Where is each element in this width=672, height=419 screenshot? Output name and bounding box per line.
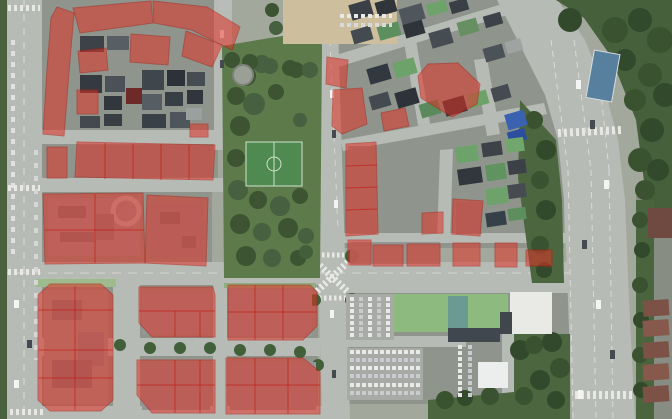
highlighted-building[interactable]: [407, 244, 440, 266]
green-area: [647, 159, 669, 181]
highlighted-block[interactable]: [139, 287, 215, 337]
building: [104, 114, 122, 126]
highlighted-building[interactable]: [190, 124, 208, 137]
green-area: [640, 118, 664, 142]
highlighted-building[interactable]: [47, 147, 67, 178]
building: [105, 76, 125, 92]
green-area: [227, 87, 245, 105]
green-area: [624, 89, 646, 111]
green-area: [253, 223, 271, 241]
green-area: [647, 27, 672, 53]
highlighted-building[interactable]: [346, 142, 378, 236]
car: [590, 120, 595, 129]
green-area: [249, 191, 267, 209]
highlighted-building[interactable]: [452, 199, 483, 236]
building: [165, 92, 183, 106]
green-area: [265, 3, 279, 17]
green-area: [632, 277, 648, 293]
apartment-building: [642, 363, 669, 381]
aerial-map-canvas[interactable]: [0, 0, 672, 419]
dark-red-roof-building: [126, 88, 142, 104]
green-area: [293, 113, 307, 127]
road: [344, 283, 568, 293]
green-area: [282, 60, 298, 76]
green-area: [628, 8, 652, 32]
green-area: [635, 180, 655, 200]
green-area: [243, 93, 265, 115]
green-area: [302, 62, 318, 78]
green-area: [481, 387, 499, 405]
green-area: [264, 344, 276, 356]
building: [507, 159, 527, 175]
highlighted-block[interactable]: [137, 360, 215, 413]
green-area: [263, 249, 281, 267]
car: [14, 380, 19, 388]
highlighted-building[interactable]: [526, 250, 552, 266]
building: [186, 108, 202, 120]
building: [187, 72, 205, 86]
car: [596, 300, 601, 309]
green-area: [230, 116, 250, 136]
green-area: [632, 212, 648, 228]
building: [478, 362, 508, 388]
green-area: [144, 342, 156, 354]
building: [500, 312, 512, 334]
green-area: [536, 140, 556, 160]
highlighted-building[interactable]: [130, 34, 170, 65]
car: [220, 60, 224, 68]
car: [576, 80, 581, 89]
green-area: [292, 188, 308, 204]
building: [481, 141, 503, 158]
green-area: [525, 336, 543, 354]
car: [332, 130, 336, 138]
car: [604, 180, 609, 189]
building: [167, 70, 185, 86]
building: [142, 70, 164, 90]
brick-building: [648, 208, 672, 238]
green-area: [436, 391, 454, 409]
green-area: [536, 200, 556, 220]
green-area: [204, 342, 216, 354]
green-area: [602, 17, 628, 43]
green-area: [114, 339, 126, 351]
green-area: [530, 370, 550, 390]
building: [142, 114, 166, 128]
building: [107, 36, 129, 50]
apartment-building: [642, 299, 669, 317]
highlighted-building[interactable]: [373, 245, 403, 266]
highlighted-block[interactable]: [226, 358, 320, 414]
green-area: [299, 245, 313, 259]
green-area: [542, 332, 562, 352]
green-area: [269, 21, 283, 35]
green-area: [515, 387, 533, 405]
highlighted-building[interactable]: [77, 90, 98, 114]
building: [455, 145, 479, 164]
highlighted-building[interactable]: [326, 57, 348, 88]
building: [448, 296, 468, 330]
apartment-building: [642, 385, 669, 403]
apartment-building: [642, 341, 669, 359]
park-pavilion: [233, 65, 253, 85]
apartment-building: [642, 319, 669, 337]
building: [507, 183, 527, 199]
screenshot-root: [0, 0, 672, 419]
green-area: [531, 171, 549, 189]
building: [187, 90, 203, 104]
green-area: [457, 390, 473, 406]
green-area: [278, 218, 298, 238]
green-area: [298, 228, 314, 244]
building: [80, 116, 100, 128]
green-area: [174, 342, 186, 354]
highlighted-building[interactable]: [78, 48, 108, 73]
highlighted-building[interactable]: [495, 243, 517, 267]
green-area: [228, 180, 248, 200]
highlighted-building[interactable]: [422, 212, 443, 234]
building: [142, 94, 162, 110]
green-area: [638, 63, 662, 87]
green-area: [525, 111, 543, 129]
car: [578, 390, 583, 399]
green-area: [270, 196, 290, 216]
highlighted-building[interactable]: [453, 243, 480, 266]
green-area: [230, 214, 250, 234]
green-area: [227, 149, 245, 167]
building: [104, 96, 122, 110]
white-roof-building: [510, 292, 552, 334]
green-area: [634, 242, 650, 258]
green-area: [262, 58, 278, 74]
car: [610, 350, 615, 359]
street-median: [0, 0, 7, 419]
building: [485, 187, 509, 206]
highlighted-block[interactable]: [43, 193, 145, 264]
building: [505, 137, 525, 153]
green-area: [234, 344, 246, 356]
building: [218, 0, 232, 10]
car: [582, 240, 587, 249]
green-area: [558, 8, 582, 32]
green-area: [547, 391, 565, 409]
building: [485, 163, 507, 182]
car: [332, 370, 336, 378]
car: [330, 310, 334, 318]
green-area: [550, 358, 570, 378]
green-area: [236, 246, 256, 266]
car: [14, 300, 19, 308]
building: [507, 207, 526, 221]
building: [448, 328, 500, 342]
green-area: [294, 346, 306, 358]
highlighted-block[interactable]: [145, 195, 208, 266]
highlighted-building[interactable]: [348, 240, 371, 265]
building: [457, 166, 483, 185]
building: [485, 211, 507, 228]
highlighted-building[interactable]: [75, 142, 215, 180]
car: [27, 340, 32, 348]
green-area: [268, 84, 284, 100]
car: [334, 200, 338, 208]
